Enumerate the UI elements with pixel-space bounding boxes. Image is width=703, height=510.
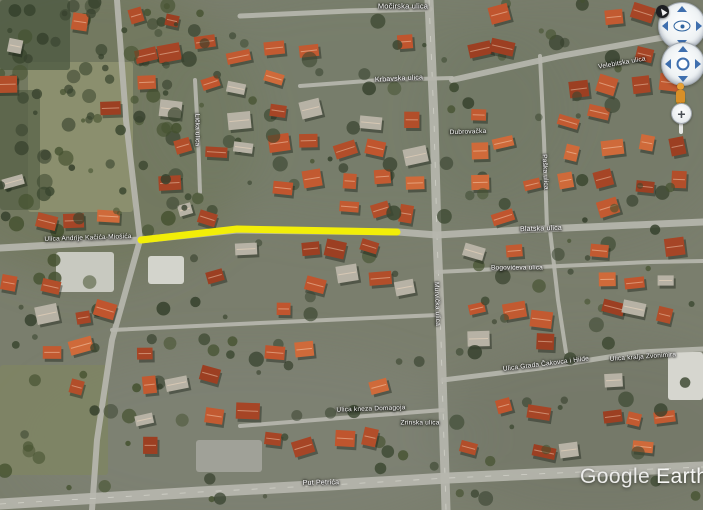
zoom-slider-track[interactable] (679, 123, 683, 134)
google-earth-watermark: GoogleEarth (580, 465, 703, 489)
watermark-google: Google (580, 465, 650, 488)
north-arrow-icon[interactable] (656, 5, 669, 18)
look-up-arrow-icon[interactable] (677, 6, 687, 12)
move-right-arrow-icon[interactable] (695, 59, 701, 69)
satellite-imagery[interactable] (0, 0, 703, 510)
look-left-arrow-icon[interactable] (662, 21, 668, 31)
look-right-arrow-icon[interactable] (696, 21, 702, 31)
google-earth-viewport[interactable]: Močirska ulicaKrbavska ulicaUlica Andrij… (0, 0, 703, 510)
watermark-earth: Earth (656, 465, 703, 488)
zoom-in-icon[interactable]: + (671, 103, 692, 124)
move-down-arrow-icon[interactable] (678, 76, 688, 82)
eye-icon (674, 21, 691, 32)
move-up-arrow-icon[interactable] (678, 46, 688, 52)
move-left-arrow-icon[interactable] (665, 59, 671, 69)
move-joystick[interactable] (661, 42, 703, 86)
move-center-dot (677, 58, 690, 71)
